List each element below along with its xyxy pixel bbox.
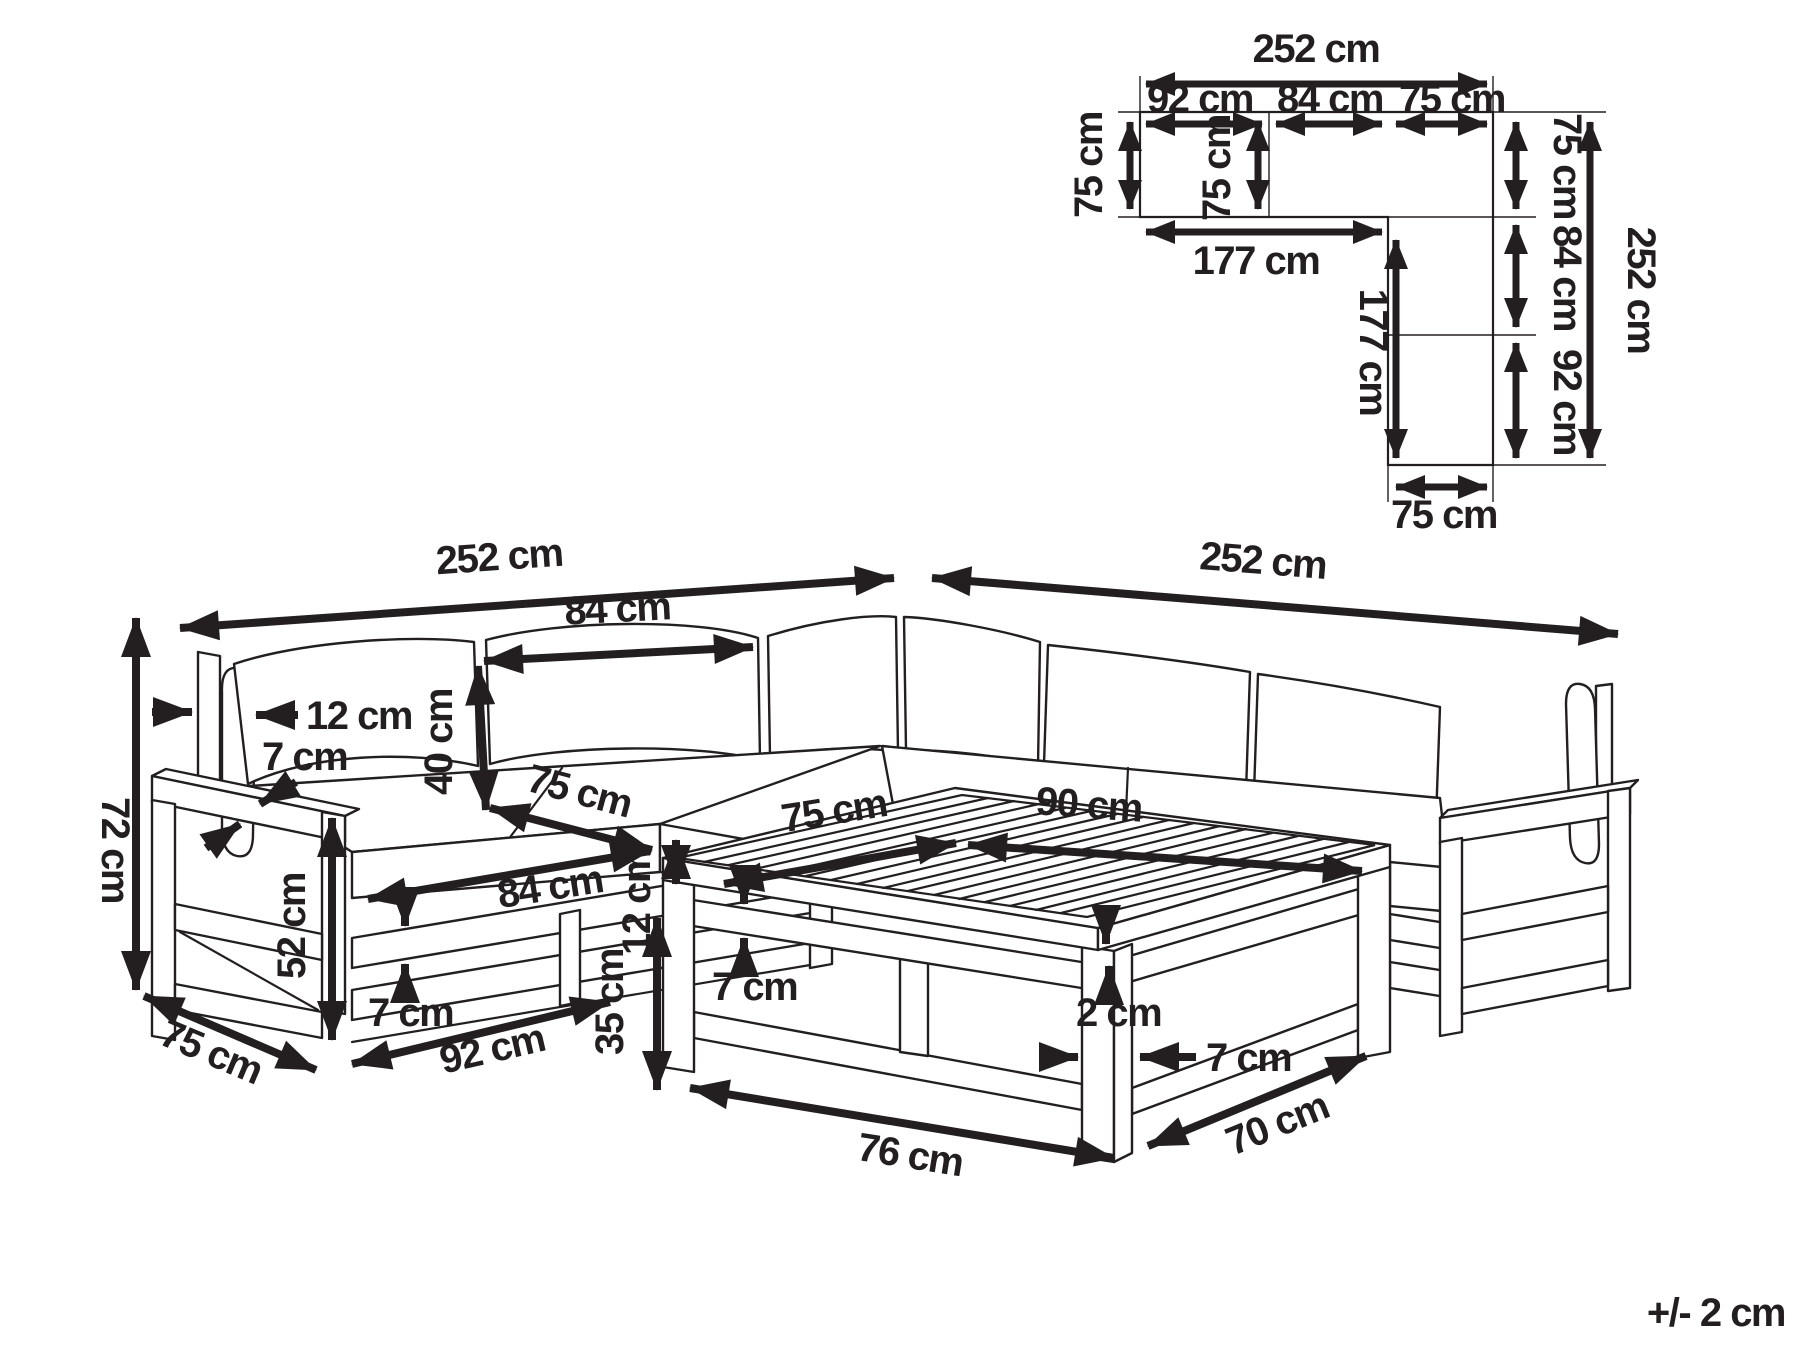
dim-label: 90 cm [1035, 779, 1144, 830]
dim-label: 75 cm [1399, 77, 1505, 121]
plan-dim-total-height: 252 cm [1590, 122, 1663, 458]
dim-total-left: 252 cm [180, 531, 894, 628]
dim-label: 2 cm [1076, 991, 1161, 1035]
dim-total-height: 72 cm [93, 618, 137, 990]
tolerance-note: +/- 2 cm [1647, 1291, 1785, 1335]
dim-label: 7 cm [1206, 1036, 1291, 1080]
dim-label: 84 cm [1545, 225, 1589, 331]
plan-view: 252 cm 92 cm 84 cm 75 cm 75 cm 75 cm 177… [1067, 27, 1663, 537]
dim-label: 52 cm [270, 873, 314, 979]
dim-line [932, 578, 1618, 634]
dim-label: 84 cm [1277, 77, 1383, 121]
dim-label: 7 cm [712, 965, 797, 1009]
dim-total-right: 252 cm [932, 534, 1618, 634]
dim-label: 7 cm [368, 991, 453, 1035]
dim-label: 75 cm [1195, 115, 1239, 221]
plan-dim-inner-height: 177 cm [1351, 240, 1396, 458]
dim-label: 75 cm [1391, 493, 1497, 537]
dim-label: 177 cm [1351, 289, 1395, 416]
plan-dim-right-mid: 84 cm [1516, 225, 1589, 331]
table-leg-south-side [1114, 944, 1132, 1162]
left-frame-mid-post [560, 910, 580, 1006]
plan-dim-seg-c: 75 cm [1396, 77, 1505, 124]
diagram-canvas: 252 cm 92 cm 84 cm 75 cm 75 cm 75 cm 177… [0, 0, 1800, 1350]
table-leg-west [663, 880, 694, 1072]
plan-dim-total-width: 252 cm [1146, 27, 1487, 84]
dim-label: 177 cm [1193, 239, 1320, 283]
dim-label: 84 cm [563, 584, 671, 633]
dim-label: 92 cm [1545, 349, 1589, 455]
plan-dim-depth-inner: 75 cm [1195, 115, 1258, 221]
dim-label: 12 cm [306, 694, 412, 738]
dim-label: 75 cm [1067, 112, 1111, 218]
plan-dim-seg-b: 84 cm [1276, 77, 1383, 124]
right-armrest-back-post [1608, 788, 1630, 991]
right-armrest-front-post [1440, 838, 1462, 1036]
right-armrest-bottom-rail [1462, 960, 1608, 1014]
plan-outline [1140, 112, 1493, 465]
dim-label: 35 cm [588, 949, 632, 1055]
plan-dim-bottom-width: 75 cm [1391, 487, 1497, 537]
dim-label: 252 cm [434, 531, 563, 584]
dim-label: 7 cm [262, 735, 347, 779]
dim-rail-board: 7 cm [368, 896, 453, 1035]
right-back-post [1596, 684, 1612, 794]
dim-label: 252 cm [1253, 27, 1380, 71]
plan-dim-right-top: 75 cm [1516, 113, 1589, 219]
dim-label: 72 cm [93, 797, 137, 903]
dim-line [180, 578, 894, 628]
dim-label: 12 cm [615, 849, 659, 955]
back-cushion-corner-left [768, 616, 898, 757]
plan-dim-inner-width: 177 cm [1146, 232, 1382, 283]
dim-label: 92 cm [1147, 77, 1253, 121]
dim-label: 252 cm [1198, 534, 1328, 588]
right-armrest-mid-rail [1462, 886, 1608, 940]
left-back-post [198, 652, 220, 788]
plan-dim-depth-left: 75 cm [1067, 112, 1130, 218]
dim-label: 252 cm [1619, 227, 1663, 354]
dim-label: 40 cm [417, 689, 461, 795]
dimension-diagram: 252 cm 92 cm 84 cm 75 cm 75 cm 75 cm 177… [0, 0, 1800, 1350]
back-cushion-corner-right [904, 617, 1040, 766]
right-back-cushion-side [1566, 684, 1599, 864]
plan-dim-right-bottom: 92 cm [1516, 343, 1589, 458]
table-leg-east [1358, 867, 1390, 1058]
dim-label: 75 cm [1545, 113, 1589, 219]
